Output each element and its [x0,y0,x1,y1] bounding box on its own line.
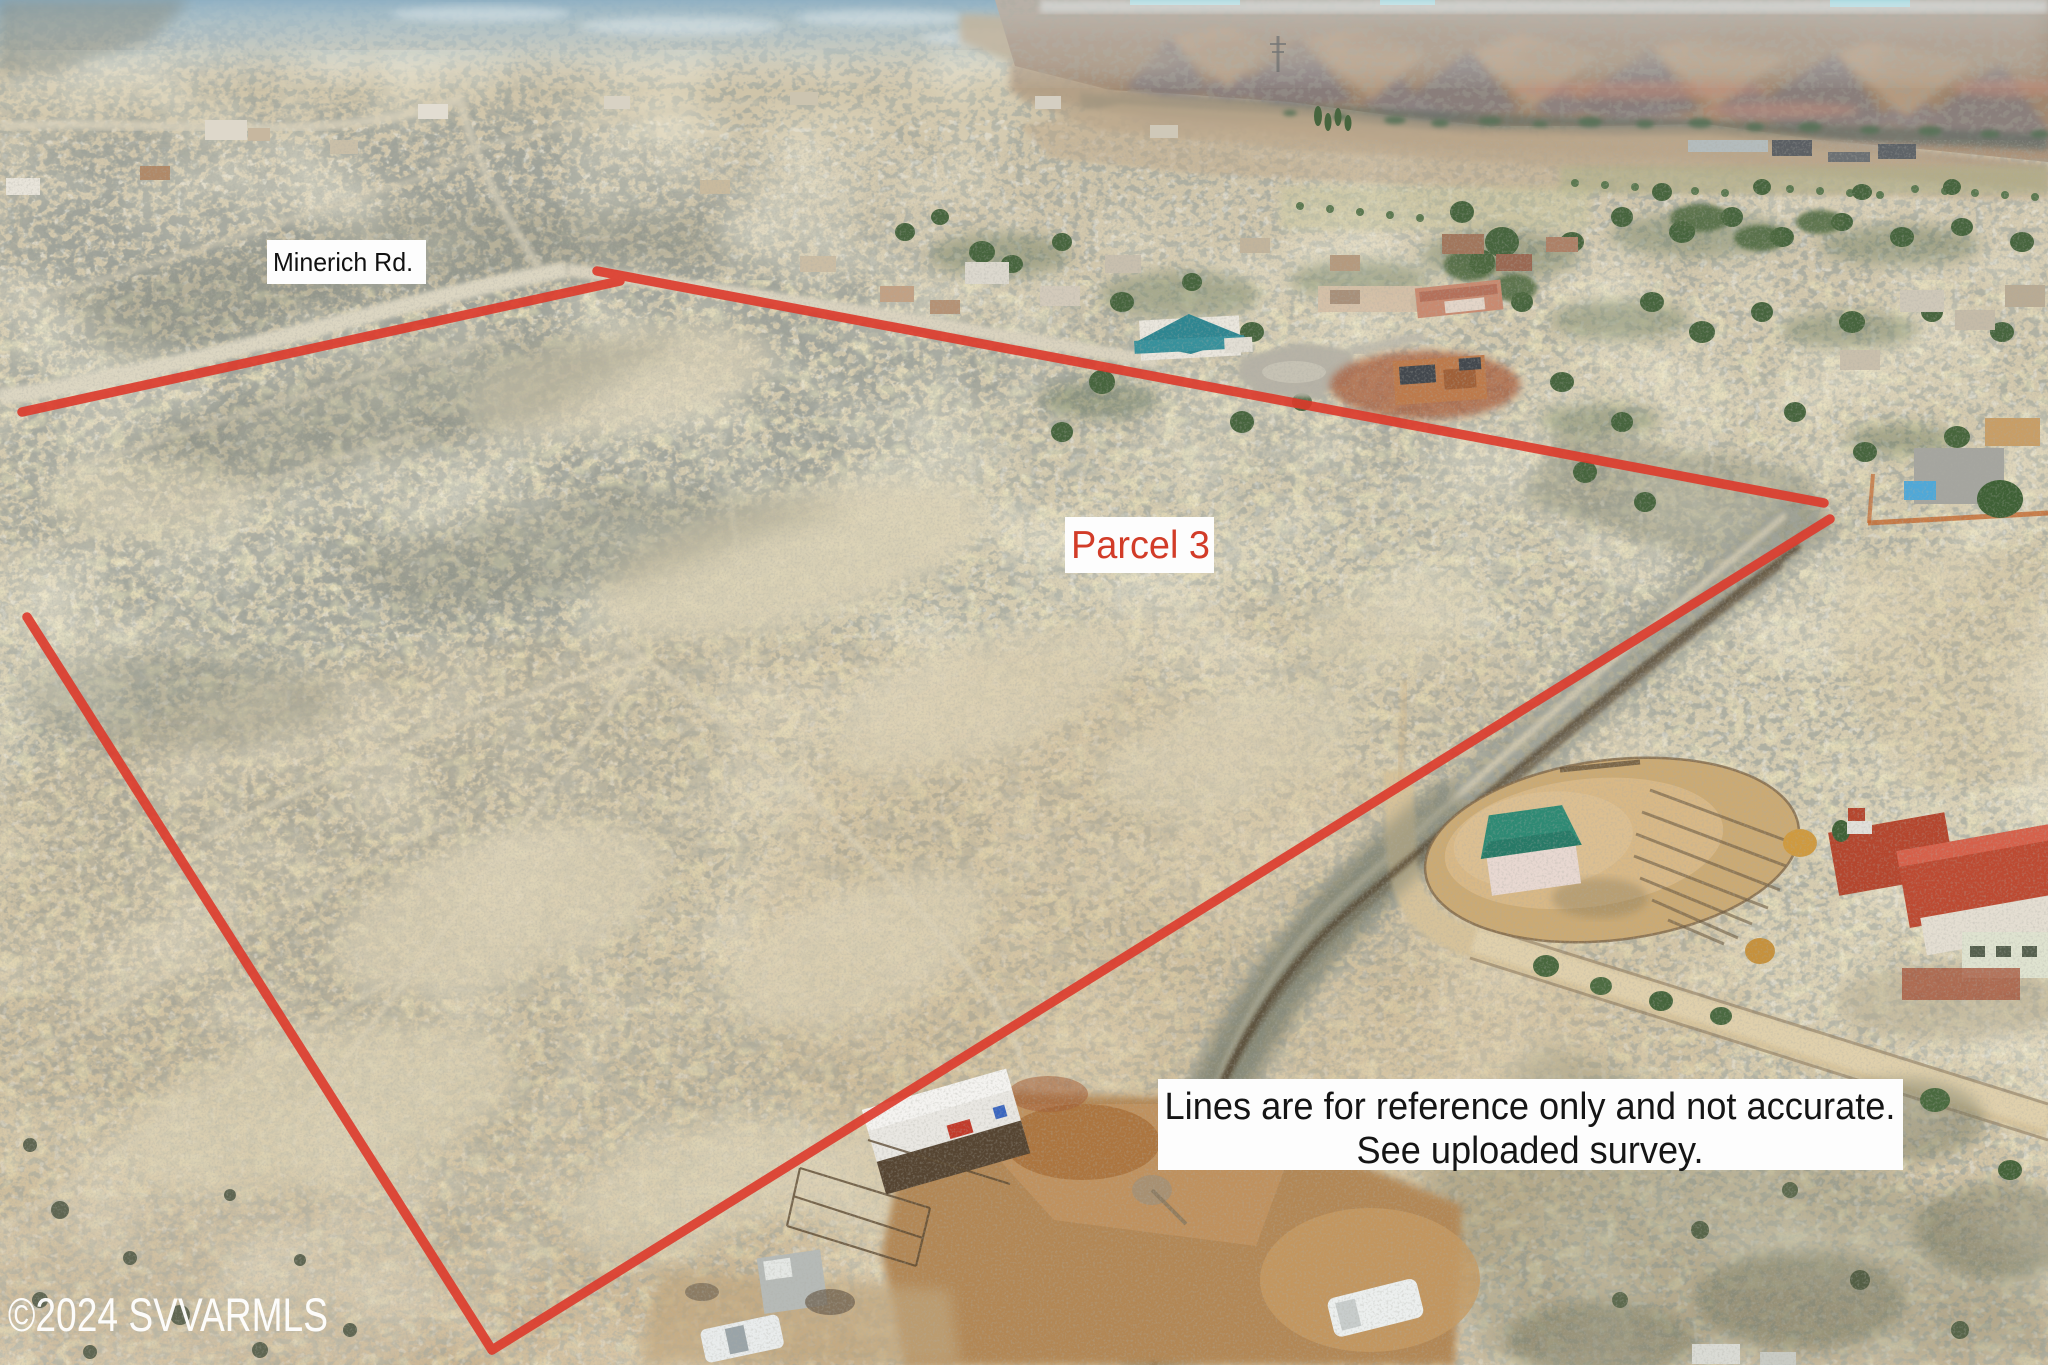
svg-text:©2024 SVVARMLS: ©2024 SVVARMLS [8,1288,328,1341]
svg-text:Lines are for reference only a: Lines are for reference only and not acc… [1165,1086,1896,1128]
svg-text:See uploaded survey.: See uploaded survey. [1357,1130,1704,1172]
svg-text:Minerich Rd.: Minerich Rd. [273,247,413,277]
svg-text:Parcel 3: Parcel 3 [1071,524,1210,567]
